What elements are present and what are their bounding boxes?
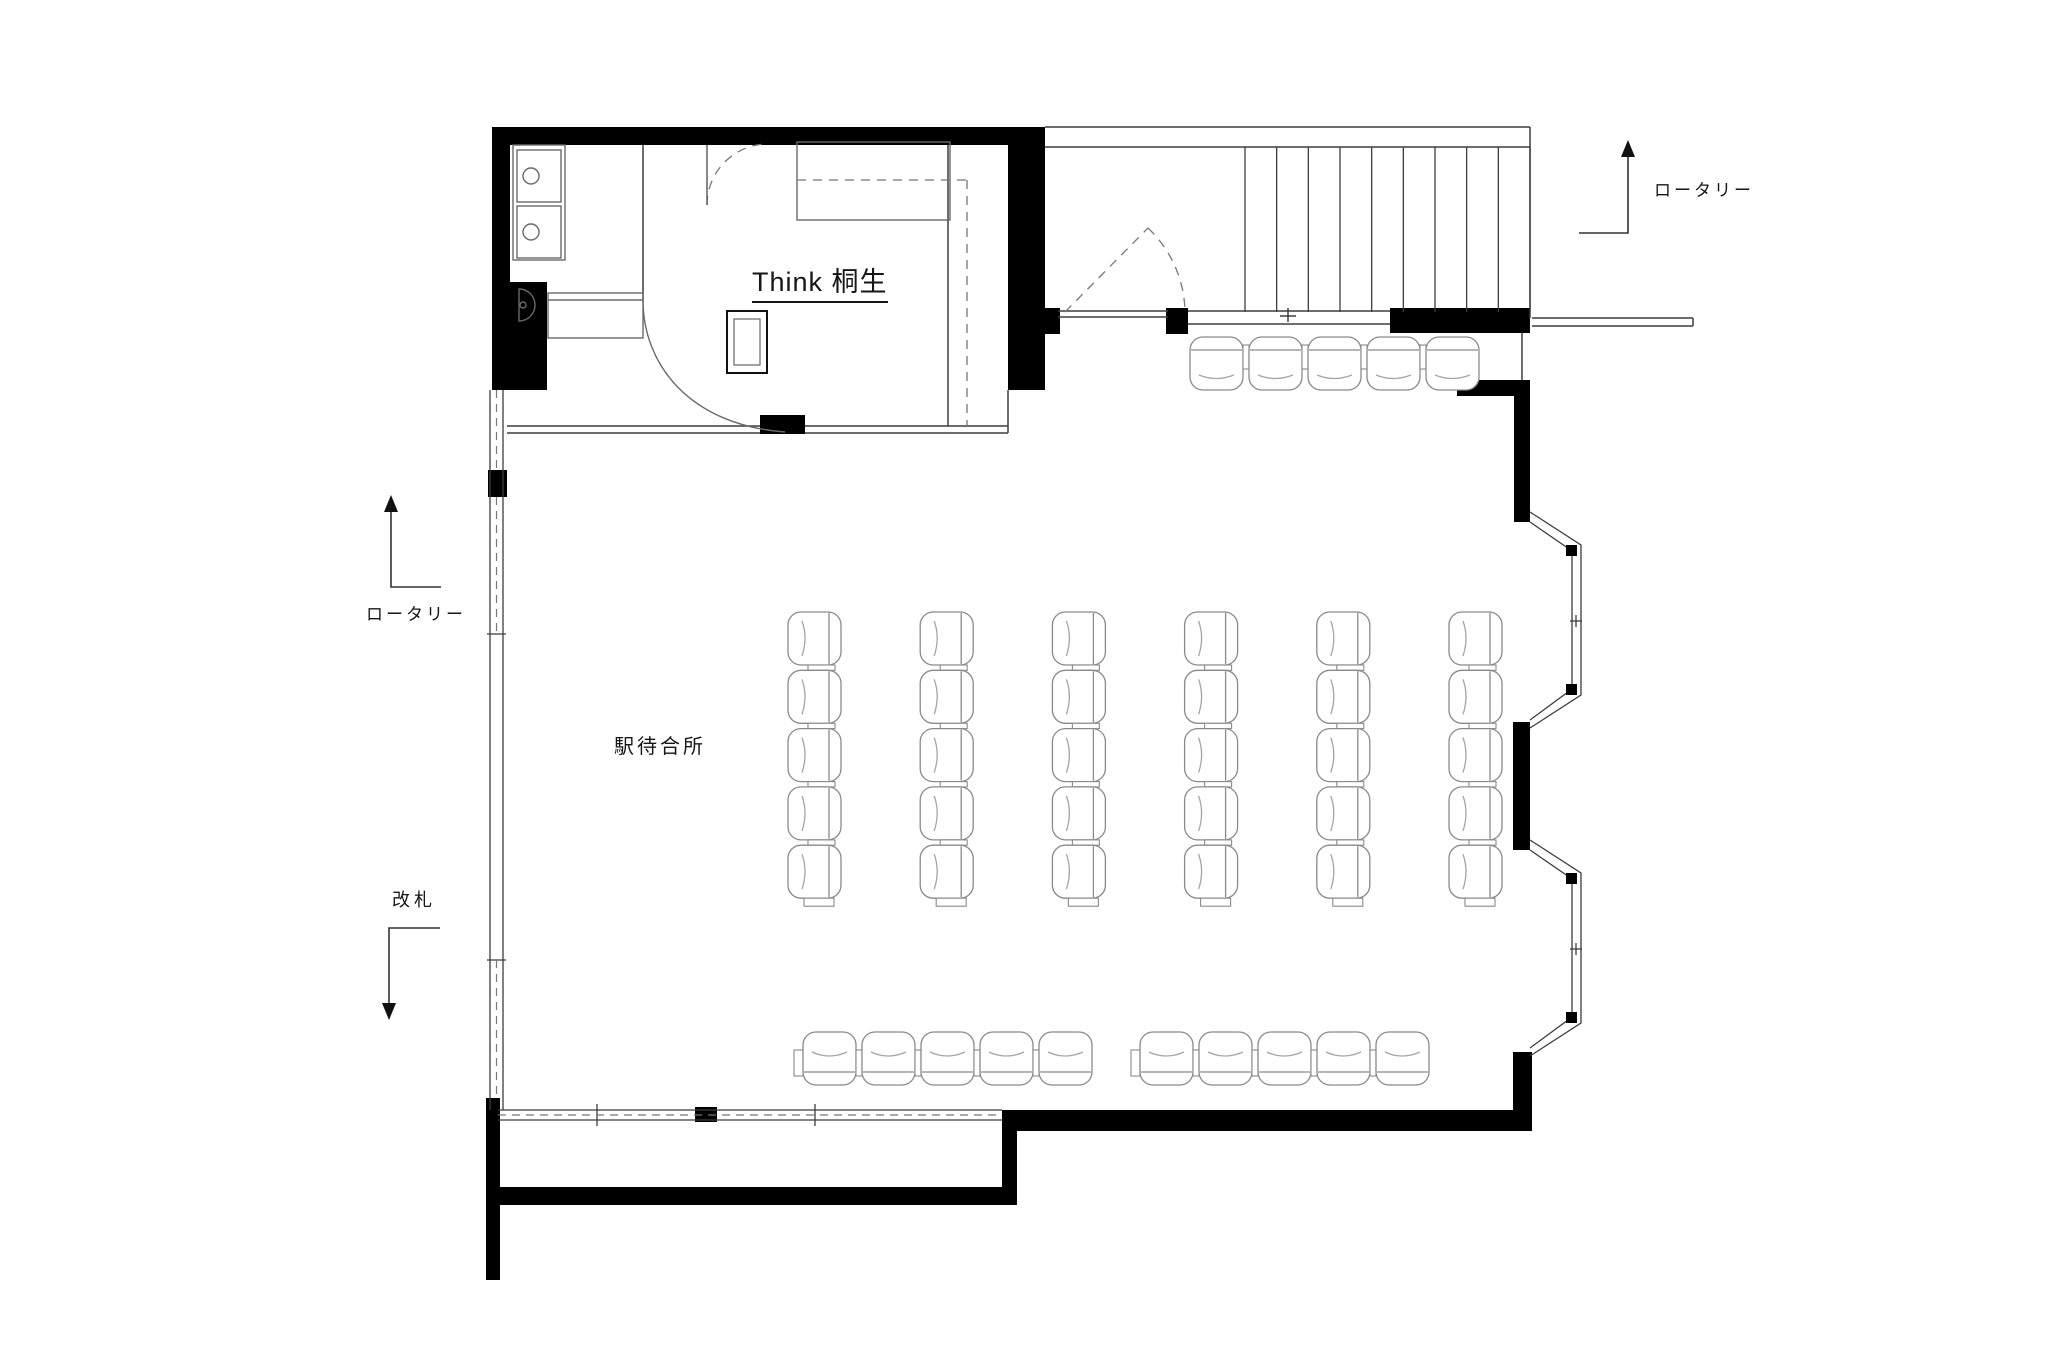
chair-armrest	[794, 1050, 803, 1076]
ticket-gate-label: 改札	[392, 886, 436, 912]
chair-base	[1333, 898, 1363, 906]
chair-link	[974, 1050, 980, 1076]
chair-link	[1205, 782, 1232, 787]
chair-link	[940, 840, 967, 845]
chair-link	[915, 1050, 921, 1076]
arrow-head-up	[384, 495, 398, 512]
chair-link	[1243, 345, 1249, 369]
chair-link	[808, 782, 835, 787]
chair-armrest	[1131, 1050, 1140, 1076]
door-swing-arc	[707, 144, 768, 205]
chair-link	[1469, 840, 1496, 845]
waiting-chairs	[788, 337, 1502, 1085]
chair-link	[1337, 782, 1364, 787]
chair	[920, 787, 973, 840]
chair-link	[1469, 782, 1496, 787]
chair	[788, 845, 841, 898]
chair	[1185, 729, 1238, 782]
bay-window	[1530, 840, 1582, 1056]
entrance-door-leaf	[1065, 228, 1148, 312]
chair-row-bottom	[794, 1032, 1092, 1085]
rotary-label-left: ロータリー	[366, 600, 466, 625]
chair-link	[1337, 840, 1364, 845]
chair	[920, 845, 973, 898]
chair	[920, 670, 973, 723]
chair	[1317, 612, 1370, 665]
chair	[1039, 1032, 1092, 1085]
pillar	[727, 311, 767, 373]
chair-link	[1193, 1050, 1199, 1076]
chair-link	[856, 1050, 862, 1076]
chair-link	[1072, 782, 1099, 787]
chair	[1052, 612, 1105, 665]
chair-column	[920, 612, 973, 906]
chair-link	[940, 723, 967, 728]
chair-link	[1370, 1050, 1376, 1076]
bay-window	[1530, 512, 1582, 728]
chair-link	[1469, 665, 1496, 670]
chair	[788, 729, 841, 782]
chair	[788, 612, 841, 665]
chair	[920, 729, 973, 782]
chair-link	[1072, 665, 1099, 670]
bay-corner-post	[1566, 545, 1577, 556]
chair-link	[1469, 723, 1496, 728]
chair-row-bottom	[1131, 1032, 1429, 1085]
rotary-left-arrow	[391, 507, 441, 587]
chair	[1317, 787, 1370, 840]
shop-name-label: Think 桐生	[752, 260, 888, 303]
chair	[1052, 670, 1105, 723]
chair	[1317, 729, 1370, 782]
chair	[1190, 337, 1243, 390]
chair-link	[1205, 665, 1232, 670]
chair	[1249, 337, 1302, 390]
curved-counter	[643, 300, 785, 432]
chair	[788, 670, 841, 723]
chair	[1052, 729, 1105, 782]
chair	[1185, 612, 1238, 665]
staircase	[1245, 147, 1530, 312]
chair-link	[1072, 723, 1099, 728]
chair-link	[1337, 665, 1364, 670]
chair	[1449, 787, 1502, 840]
chair	[803, 1032, 856, 1085]
chair-column	[1449, 612, 1502, 906]
chair	[1258, 1032, 1311, 1085]
chair	[1426, 337, 1479, 390]
chair	[1449, 670, 1502, 723]
chair	[920, 612, 973, 665]
chair-link	[808, 665, 835, 670]
chair-link	[1337, 723, 1364, 728]
chair-base	[1465, 898, 1495, 906]
chair	[1376, 1032, 1429, 1085]
chair-link	[1072, 840, 1099, 845]
floor-plan-canvas: Think 桐生 駅待合所 ロータリー ロータリー 改札	[0, 0, 2048, 1365]
chair-link	[1311, 1050, 1317, 1076]
chair	[980, 1032, 1033, 1085]
chair-column	[1052, 612, 1105, 906]
chair	[862, 1032, 915, 1085]
chair	[1317, 670, 1370, 723]
bay-corner-post	[1566, 1012, 1577, 1023]
chair-base	[936, 898, 966, 906]
chair	[1052, 787, 1105, 840]
chair-link	[1420, 345, 1426, 369]
waiting-room-label: 駅待合所	[614, 730, 706, 759]
chair	[921, 1032, 974, 1085]
entrance-door-swing-arc	[1148, 228, 1185, 312]
chair-base	[1201, 898, 1231, 906]
chair	[1140, 1032, 1193, 1085]
chair	[1185, 845, 1238, 898]
bay-windows	[1530, 512, 1582, 1056]
bay-corner-post	[1566, 684, 1577, 695]
chair	[1449, 729, 1502, 782]
chair-link	[1361, 345, 1367, 369]
chair-link	[1205, 723, 1232, 728]
chair-column	[788, 612, 841, 906]
chair-link	[1205, 840, 1232, 845]
chair-base	[1068, 898, 1098, 906]
chair	[1317, 845, 1370, 898]
chair	[1185, 787, 1238, 840]
floor-plan-drawing	[0, 0, 2048, 1365]
chair-link	[808, 723, 835, 728]
chair-link	[808, 840, 835, 845]
ticket-gate-arrow	[389, 928, 440, 1008]
chair-link	[1033, 1050, 1039, 1076]
bay-corner-post	[1566, 873, 1577, 884]
chair-link	[940, 782, 967, 787]
arrow-head-down	[382, 1003, 396, 1020]
rotary-top-arrow	[1579, 152, 1628, 233]
chair-column	[1317, 612, 1370, 906]
chair	[1308, 337, 1361, 390]
chair	[788, 787, 841, 840]
chair-link	[940, 665, 967, 670]
chair	[1199, 1032, 1252, 1085]
chair	[1052, 845, 1105, 898]
chair-link	[1302, 345, 1308, 369]
service-counter	[797, 142, 950, 220]
chair	[1449, 612, 1502, 665]
chair-column	[1185, 612, 1238, 906]
chair-link	[1252, 1050, 1258, 1076]
chair	[1317, 1032, 1370, 1085]
arrow-head-up	[1621, 140, 1635, 157]
chair	[1185, 670, 1238, 723]
rotary-label-top: ロータリー	[1654, 176, 1754, 201]
chair	[1449, 845, 1502, 898]
chair-base	[804, 898, 834, 906]
chair	[1367, 337, 1420, 390]
chair-row-top	[1190, 337, 1479, 390]
